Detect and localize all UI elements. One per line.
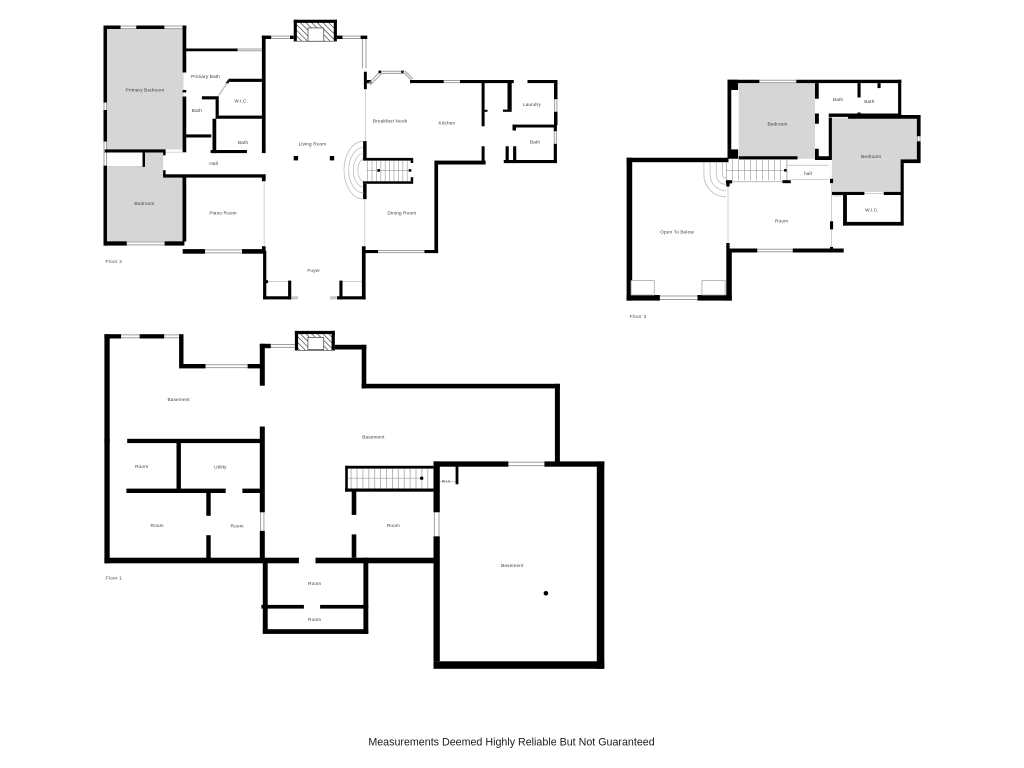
svg-text:Floor 3: Floor 3 [630, 314, 647, 320]
svg-text:Basement: Basement [168, 397, 191, 402]
svg-text:Room: Room [135, 464, 148, 469]
svg-text:Dining Room: Dining Room [388, 210, 417, 215]
svg-text:Room: Room [308, 581, 321, 586]
svg-text:Room: Room [231, 524, 244, 529]
svg-text:Room: Room [387, 523, 400, 528]
svg-text:Living Room: Living Room [299, 141, 327, 146]
svg-text:W.I.C.: W.I.C. [865, 208, 879, 213]
svg-text:Piano Room: Piano Room [209, 211, 236, 216]
svg-text:Utility: Utility [214, 465, 227, 470]
svg-text:Bath: Bath [238, 140, 248, 145]
svg-text:Laundry: Laundry [523, 102, 541, 107]
svg-text:Basement: Basement [501, 563, 524, 568]
svg-text:Primary Bedroom: Primary Bedroom [126, 87, 165, 92]
svg-text:Floor 1: Floor 1 [106, 575, 123, 581]
svg-text:Measurements Deemed Highly Rel: Measurements Deemed Highly Reliable But … [368, 736, 654, 748]
svg-text:Breakfast Nook: Breakfast Nook [373, 119, 408, 124]
svg-text:Bedroom: Bedroom [134, 201, 154, 206]
svg-text:Basement: Basement [362, 435, 385, 440]
svg-text:Bath: Bath [864, 99, 874, 104]
svg-text:Hall: Hall [209, 161, 218, 166]
svg-text:W.I.C.: W.I.C. [442, 479, 451, 483]
svg-text:Bath: Bath [530, 140, 540, 145]
svg-text:Primary Bath: Primary Bath [191, 74, 220, 79]
svg-text:Bath: Bath [833, 97, 843, 102]
svg-text:Room: Room [775, 219, 788, 224]
svg-text:Open To Below: Open To Below [660, 230, 694, 235]
svg-text:hall: hall [804, 171, 812, 176]
svg-text:Foyer: Foyer [307, 268, 320, 273]
svg-text:Bedroom: Bedroom [861, 154, 881, 159]
svg-text:Bath: Bath [192, 108, 202, 113]
svg-text:Room: Room [308, 617, 321, 622]
svg-text:Room: Room [151, 523, 164, 528]
svg-text:Bedroom: Bedroom [767, 122, 787, 127]
svg-text:W.I.C.: W.I.C. [234, 98, 248, 103]
svg-text:Floor 2: Floor 2 [106, 259, 123, 265]
svg-text:Kitchen: Kitchen [439, 121, 456, 126]
